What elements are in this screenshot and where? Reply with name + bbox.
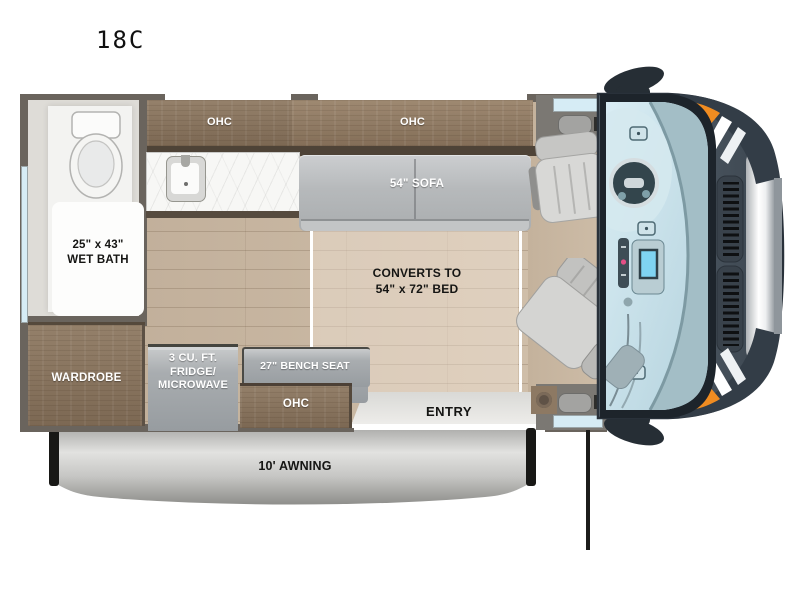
fridge-label-line2: FRIDGE/ [148,366,238,380]
ohc-bottom-label: OHC [240,398,352,410]
bed-label-line2: 54" x 72" BED [327,281,507,297]
wet-bath-name: WET BATH [44,253,152,268]
dash-screen [640,250,657,278]
sofa-front-rail [301,219,529,231]
gear-knob-icon [624,298,633,307]
entry-threshold-line [352,424,548,428]
bed-label-line1: CONVERTS TO [327,265,507,281]
awning-label: 10' AWNING [230,459,360,473]
toilet-seat [78,141,114,187]
kitchen-counter-edge [146,211,300,218]
steering-wheel-spoke2 [618,192,626,200]
sink-faucet-icon [181,155,190,167]
sofa-label: 54" SOFA [347,178,487,190]
awning-end-cap-right [526,428,536,486]
steering-wheel-spoke [642,190,650,198]
sofa [299,155,531,231]
sink-drain-icon [184,182,188,186]
fridge-label-line1: 3 CU. FT. [148,352,238,366]
awning-end-cap-left [49,428,59,486]
grille-vent-lower-slats [721,272,739,346]
fridge-label: 3 CU. FT. FRIDGE/ MICROWAVE [148,352,238,393]
ohc-right-label: OHC [292,116,533,128]
fridge-label-line3: MICROWAVE [148,379,238,393]
dash-warning-light [621,259,626,264]
bed-label: CONVERTS TO 54" x 72" BED [327,265,507,297]
sink-basin [171,163,199,194]
floorplan-stage: 18C 25" x 43" WET BATH WARDROBE OHC OHC [0,0,800,600]
sink [166,156,206,202]
rear-window [21,166,28,323]
van-front [560,50,792,462]
wardrobe-label: WARDROBE [28,372,145,384]
toilet [66,110,126,202]
bench-seat-label: 27" BENCH SEAT [240,360,370,372]
model-number: 18C [96,26,145,54]
ohc-left-label: OHC [147,116,292,128]
entry-label: ENTRY [389,404,509,419]
grille-vent-upper-slats [721,182,739,256]
bumper-edge [774,178,782,334]
steering-wheel-hub [624,178,644,188]
wet-bath-size: 25" x 43" [44,238,152,253]
wet-bath-label: 25" x 43" WET BATH [44,238,152,268]
